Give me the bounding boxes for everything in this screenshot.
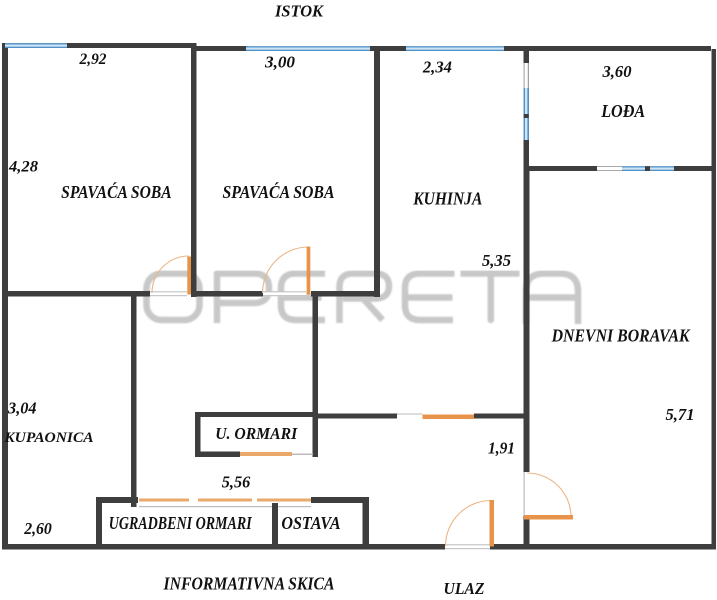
svg-text:2,92: 2,92 bbox=[79, 51, 107, 68]
svg-text:1,91: 1,91 bbox=[488, 439, 515, 458]
svg-text:SPAVAĆA SOBA: SPAVAĆA SOBA bbox=[61, 181, 172, 202]
svg-text:2,60: 2,60 bbox=[23, 519, 52, 538]
svg-text:ULAZ: ULAZ bbox=[444, 579, 485, 598]
svg-text:2,34: 2,34 bbox=[422, 58, 452, 77]
svg-text:5,56: 5,56 bbox=[222, 473, 251, 492]
svg-text:SPAVAĆA SOBA: SPAVAĆA SOBA bbox=[223, 181, 335, 202]
svg-text:3,00: 3,00 bbox=[264, 52, 295, 71]
svg-text:INFORMATIVNA SKICA: INFORMATIVNA SKICA bbox=[163, 574, 335, 594]
svg-text:4,28: 4,28 bbox=[8, 158, 38, 175]
svg-text:5,71: 5,71 bbox=[666, 405, 695, 424]
svg-text:KUPAONICA: KUPAONICA bbox=[3, 430, 93, 446]
svg-text:U. ORMARI: U. ORMARI bbox=[215, 424, 298, 443]
svg-text:5,35: 5,35 bbox=[482, 251, 511, 270]
svg-text:ISTOK: ISTOK bbox=[274, 2, 324, 21]
svg-text:OSTAVA: OSTAVA bbox=[281, 513, 340, 533]
svg-text:DNEVNI BORAVAK: DNEVNI BORAVAK bbox=[551, 326, 692, 346]
svg-text:KUHINJA: KUHINJA bbox=[412, 189, 482, 209]
svg-text:3,04: 3,04 bbox=[7, 398, 36, 417]
svg-text:LOĐA: LOĐA bbox=[600, 101, 645, 121]
svg-text:UGRADBENI ORMARI: UGRADBENI ORMARI bbox=[109, 513, 253, 533]
svg-text:3,60: 3,60 bbox=[602, 62, 632, 81]
